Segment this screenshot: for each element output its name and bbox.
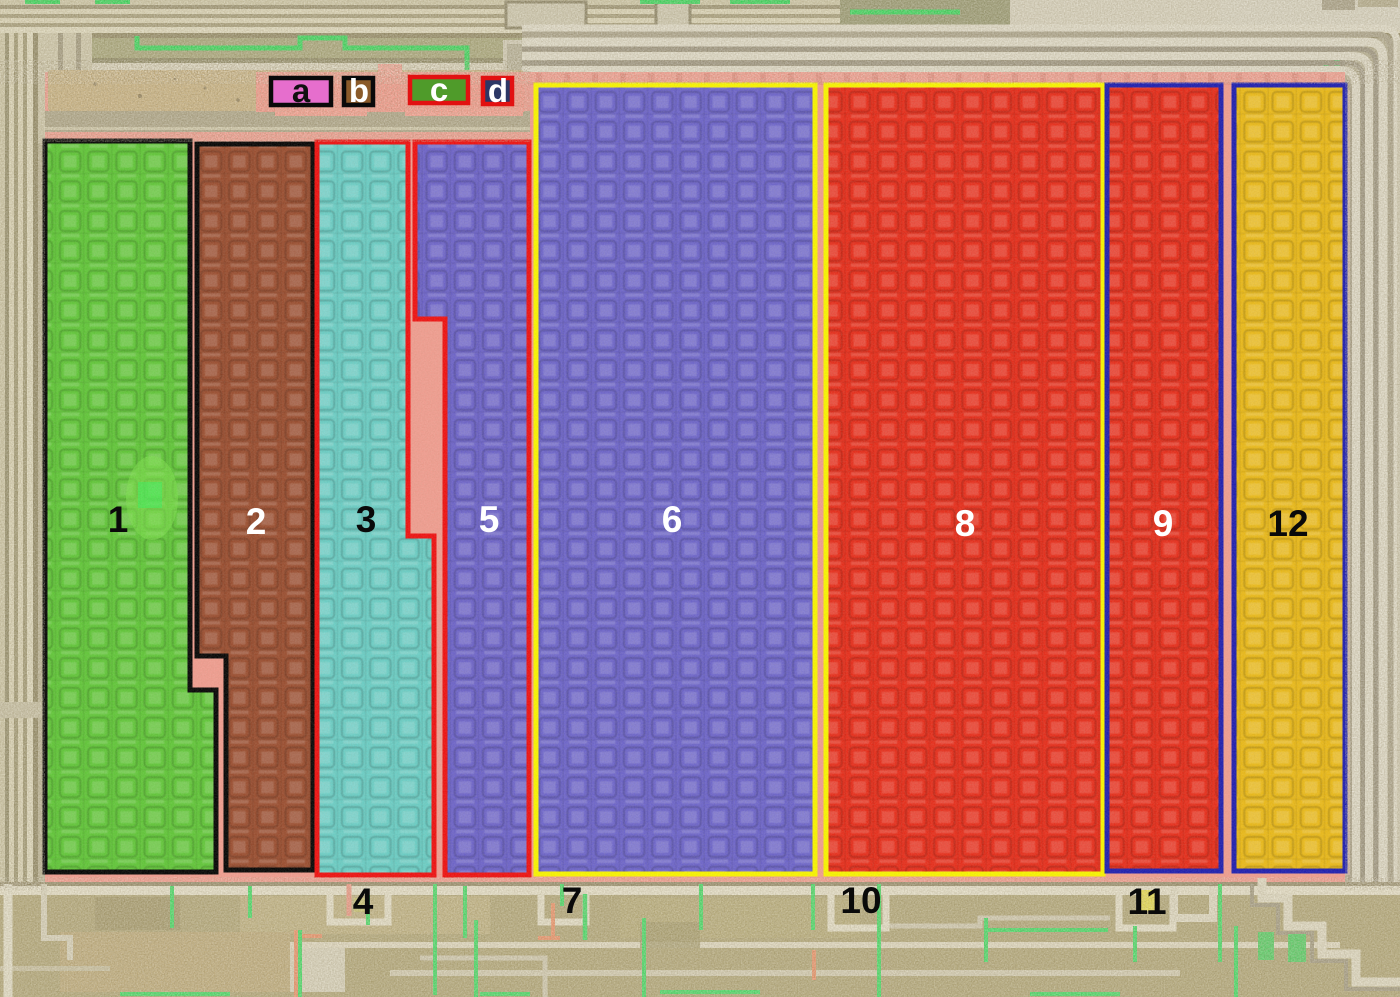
svg-text:6: 6 [662,499,683,540]
svg-text:4: 4 [353,881,374,922]
svg-text:3: 3 [356,499,377,540]
svg-text:11: 11 [1127,881,1166,922]
svg-text:7: 7 [562,880,583,921]
svg-text:10: 10 [840,880,881,921]
svg-text:c: c [430,71,448,108]
svg-text:2: 2 [246,501,267,542]
svg-text:d: d [488,72,508,109]
svg-text:8: 8 [955,503,976,544]
svg-text:5: 5 [479,499,500,540]
svg-text:12: 12 [1267,503,1308,544]
svg-text:1: 1 [108,499,129,540]
svg-text:b: b [349,72,369,109]
svg-text:9: 9 [1153,503,1174,544]
svg-text:a: a [292,72,311,109]
